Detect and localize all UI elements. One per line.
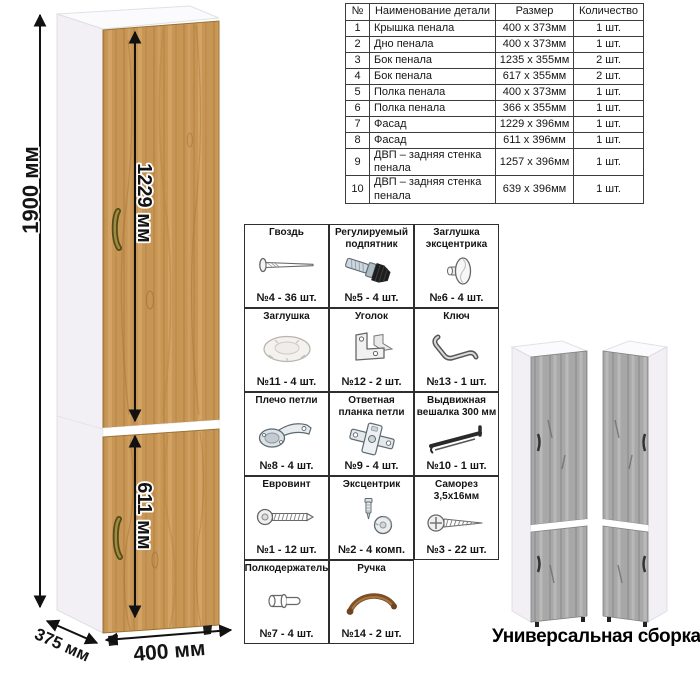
assembly-instruction-sheet: 1900 мм 1229 мм 611 мм 400 мм 375 мм	[0, 0, 700, 683]
part-name: Бок пенала	[370, 53, 496, 69]
hardware-item: Полкодержатель №7 - 4 шт.	[244, 560, 329, 644]
hardware-item-count: №14 - 2 шт.	[341, 628, 401, 643]
col-header-num: №	[346, 4, 370, 21]
part-number: 4	[346, 69, 370, 85]
cap-icon	[251, 323, 323, 377]
col-header-size: Размер	[496, 4, 574, 21]
hardware-item: Заглушка эксцентрика №6 - 4 шт.	[414, 224, 499, 308]
col-header-name: Наименование детали	[370, 4, 496, 21]
table-row: 4Бок пенала617 х 355мм2 шт.	[346, 69, 644, 85]
part-qty: 2 шт.	[574, 53, 644, 69]
part-name: ДВП – задняя стенка пенала	[370, 149, 496, 176]
part-number: 1	[346, 21, 370, 37]
part-number: 9	[346, 149, 370, 176]
table-row: 9ДВП – задняя стенка пенала1257 х 396мм1…	[346, 149, 644, 176]
shelf-pin-icon	[251, 575, 323, 629]
eccentric-cap-icon	[421, 250, 493, 292]
hardware-item-title: Эксцентрик	[342, 477, 401, 491]
hardware-item: Ответная планка петли №9 - 4 шт.	[329, 392, 414, 476]
part-size: 617 х 355мм	[496, 69, 574, 85]
table-row: 2Дно пенала400 х 373мм1 шт.	[346, 37, 644, 53]
hardware-item-title: Регулируемый подпятник	[330, 225, 413, 250]
hardware-item: Выдвижная вешалка 300 мм №10 - 1 шт.	[414, 392, 499, 476]
hinge-arm-icon	[251, 407, 323, 461]
hardware-item: Уголок №12 - 2 шт.	[329, 308, 414, 392]
part-number: 10	[346, 176, 370, 203]
part-size: 1229 х 396мм	[496, 117, 574, 133]
part-number: 7	[346, 117, 370, 133]
adjustable-foot-icon	[336, 250, 408, 292]
hardware-item-count: №1 - 12 шт.	[256, 544, 316, 559]
part-qty: 2 шт.	[574, 69, 644, 85]
assembled-cabinet-left	[512, 341, 587, 627]
table-row: 1Крышка пенала400 х 373мм1 шт.	[346, 21, 644, 37]
handle-icon	[336, 575, 408, 629]
hardware-item-title: Полкодержатель	[244, 561, 329, 575]
hardware-item-count: №6 - 4 шт.	[430, 292, 484, 307]
part-qty: 1 шт.	[574, 133, 644, 149]
dim-depth-label: 375 мм	[32, 624, 93, 665]
part-size: 639 х 396мм	[496, 176, 574, 203]
hardware-item: Евровинт №1 - 12 шт.	[244, 476, 329, 560]
hinge-plate-icon	[336, 418, 408, 460]
hardware-item-title: Саморез 3,5х16мм	[415, 477, 498, 502]
part-qty: 1 шт.	[574, 101, 644, 117]
hardware-item-title: Гвоздь	[268, 225, 305, 239]
key-icon	[421, 323, 493, 377]
assembly-caption: Универсальная сборка.	[492, 626, 700, 648]
hardware-item-count: №4 - 36 шт.	[256, 292, 316, 307]
hardware-item-title: Уголок	[354, 309, 389, 323]
table-row: 6Полка пенала366 х 355мм1 шт.	[346, 101, 644, 117]
hardware-item-count: №13 - 1 шт.	[426, 376, 486, 391]
nail-icon	[251, 239, 323, 293]
part-size: 611 х 396мм	[496, 133, 574, 149]
hardware-item-title: Ключ	[442, 309, 470, 323]
cabinet-left-side	[57, 14, 103, 633]
part-size: 400 х 373мм	[496, 85, 574, 101]
hardware-item-count: №2 - 4 комп.	[338, 544, 405, 559]
part-size: 1235 х 355мм	[496, 53, 574, 69]
hardware-item-title: Ручка	[356, 561, 387, 575]
hardware-item-title: Заглушка эксцентрика	[415, 225, 498, 250]
part-name: Бок пенала	[370, 69, 496, 85]
part-name: Полка пенала	[370, 85, 496, 101]
eccentric-cam-icon	[336, 491, 408, 545]
part-number: 3	[346, 53, 370, 69]
hardware-item: Саморез 3,5х16мм №3 - 22 шт.	[414, 476, 499, 560]
hardware-item-count: №5 - 4 шт.	[345, 292, 399, 307]
cabinet-foot	[203, 625, 212, 635]
part-size: 1257 х 396мм	[496, 149, 574, 176]
part-name: Полка пенала	[370, 101, 496, 117]
part-qty: 1 шт.	[574, 149, 644, 176]
assembled-cabinet-right	[603, 341, 667, 627]
dim-height-label: 1900 мм	[18, 146, 43, 234]
hardware-grid: Гвоздь №4 - 36 шт. Регулируемый подпятни…	[244, 224, 499, 644]
part-size: 400 х 373мм	[496, 21, 574, 37]
part-name: Крышка пенала	[370, 21, 496, 37]
table-row: 5Полка пенала400 х 373мм1 шт.	[346, 85, 644, 101]
part-qty: 1 шт.	[574, 21, 644, 37]
part-name: Дно пенала	[370, 37, 496, 53]
hardware-item-count: №11 - 4 шт.	[257, 376, 317, 391]
dim-width-label: 400 мм	[133, 637, 207, 666]
screw-icon	[421, 502, 493, 544]
hardware-item-count: №8 - 4 шт.	[260, 460, 314, 475]
parts-table: № Наименование детали Размер Количество …	[345, 3, 644, 204]
dim-upper-door-label: 1229 мм	[133, 163, 155, 243]
hardware-item-count: №3 - 22 шт.	[426, 544, 486, 559]
table-row: 10ДВП – задняя стенка пенала639 х 396мм1…	[346, 176, 644, 203]
part-number: 8	[346, 133, 370, 149]
table-row: 7Фасад1229 х 396мм1 шт.	[346, 117, 644, 133]
part-name: Фасад	[370, 117, 496, 133]
part-size: 400 х 373мм	[496, 37, 574, 53]
hardware-item: Эксцентрик №2 - 4 комп.	[329, 476, 414, 560]
part-number: 5	[346, 85, 370, 101]
hardware-item: Плечо петли №8 - 4 шт.	[244, 392, 329, 476]
hardware-item-title: Ответная планка петли	[330, 393, 413, 418]
pullout-hanger-icon	[421, 418, 493, 460]
part-qty: 1 шт.	[574, 37, 644, 53]
upper-door	[103, 21, 219, 428]
part-qty: 1 шт.	[574, 85, 644, 101]
hardware-item-count: №12 - 2 шт.	[341, 376, 401, 391]
hardware-item: Регулируемый подпятник №5 - 4 шт.	[329, 224, 414, 308]
lower-door	[103, 429, 219, 633]
hardware-item-count: №7 - 4 шт.	[260, 628, 314, 643]
hardware-item-count: №10 - 1 шт.	[426, 460, 486, 475]
dim-lower-door-label: 611 мм	[133, 482, 155, 549]
part-name: Фасад	[370, 133, 496, 149]
hardware-item-title: Евровинт	[261, 477, 311, 491]
assembled-cabinets-preview	[512, 341, 667, 627]
part-size: 366 х 355мм	[496, 101, 574, 117]
main-cabinet	[57, 6, 219, 646]
hardware-item-title: Выдвижная вешалка 300 мм	[415, 393, 498, 418]
hardware-item: Заглушка №11 - 4 шт.	[244, 308, 329, 392]
table-row: 3Бок пенала1235 х 355мм2 шт.	[346, 53, 644, 69]
hardware-item-title: Плечо петли	[254, 393, 318, 407]
hardware-item-title: Заглушка	[262, 309, 310, 323]
table-row: 8Фасад611 х 396мм1 шт.	[346, 133, 644, 149]
hardware-item: Ключ №13 - 1 шт.	[414, 308, 499, 392]
part-qty: 1 шт.	[574, 176, 644, 203]
hardware-item-count: №9 - 4 шт.	[345, 460, 399, 475]
table-header-row: № Наименование детали Размер Количество	[346, 4, 644, 21]
hardware-item: Гвоздь №4 - 36 шт.	[244, 224, 329, 308]
part-number: 2	[346, 37, 370, 53]
col-header-qty: Количество	[574, 4, 644, 21]
part-qty: 1 шт.	[574, 117, 644, 133]
euro-screw-icon	[251, 491, 323, 545]
hardware-item: Ручка №14 - 2 шт.	[329, 560, 414, 644]
part-name: ДВП – задняя стенка пенала	[370, 176, 496, 203]
part-number: 6	[346, 101, 370, 117]
corner-bracket-icon	[336, 323, 408, 377]
